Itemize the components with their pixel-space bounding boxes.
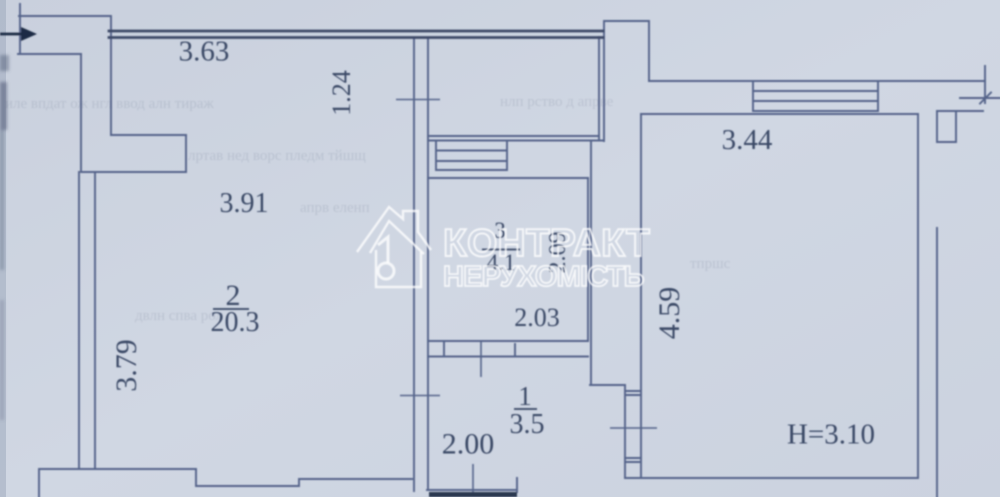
svg-text:2.00: 2.00 <box>442 428 495 461</box>
svg-text:НЕРУХОМІСТЬ: НЕРУХОМІСТЬ <box>443 261 644 293</box>
svg-text:3.5: 3.5 <box>510 409 545 440</box>
svg-text:иле впдат ож нгл ввод алн тира: иле впдат ож нгл ввод алн тираж <box>5 96 214 112</box>
svg-text:3.63: 3.63 <box>179 36 230 68</box>
svg-text:лртав нед ворс пледм тйшщ: лртав нед ворс пледм тйшщ <box>188 148 366 164</box>
svg-text:1: 1 <box>518 381 532 411</box>
svg-text:апрв еленп: апрв еленп <box>300 200 370 216</box>
svg-text:3.91: 3.91 <box>220 188 269 219</box>
svg-text:4.59: 4.59 <box>653 287 686 340</box>
svg-text:нлп рство д апрве: нлп рство д апрве <box>500 94 614 110</box>
svg-text:2.03: 2.03 <box>514 303 560 332</box>
svg-text:КОНТРАКТ: КОНТРАКТ <box>443 222 650 265</box>
svg-text:1.24: 1.24 <box>327 70 356 116</box>
svg-text:3.44: 3.44 <box>722 124 773 156</box>
svg-text:тпршс: тпршс <box>690 256 731 272</box>
svg-text:20.3: 20.3 <box>211 307 260 338</box>
svg-text:3.79: 3.79 <box>110 339 143 392</box>
svg-text:H=3.10: H=3.10 <box>787 419 875 451</box>
